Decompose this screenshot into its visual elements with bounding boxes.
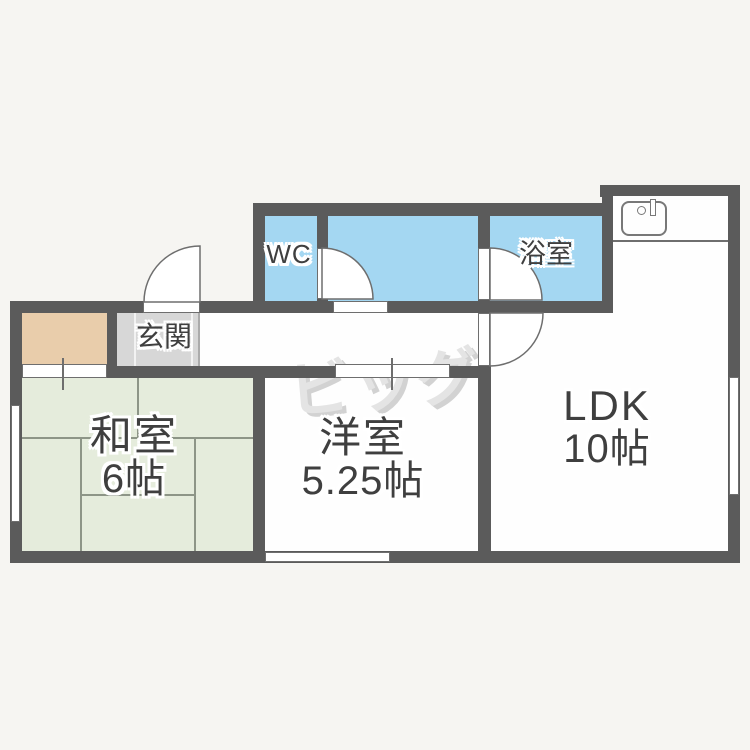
ldk-size: 10帖 [507,428,707,470]
japanese-room-size: 6帖 [34,458,234,500]
ldk-name: LDK [507,384,707,428]
floor-plan: ビッグ WC 浴室 玄関 和室 6帖 洋室 [0,0,750,750]
western-room-size: 5.25帖 [258,460,468,502]
japanese-room-name: 和室 [34,414,234,458]
entry-door-swing [144,246,200,302]
ldk-label: LDK 10帖 [507,384,707,470]
bath-label: 浴室 [446,240,646,268]
wc-label: WC [239,241,339,268]
western-room-name: 洋室 [258,416,468,460]
genkan-label: 玄関 [107,322,221,351]
japanese-room-label: 和室 6帖 [34,414,234,500]
western-room-label: 洋室 5.25帖 [258,416,468,502]
door-swing-arcs [0,0,750,750]
ldk-door-swing [490,313,543,366]
